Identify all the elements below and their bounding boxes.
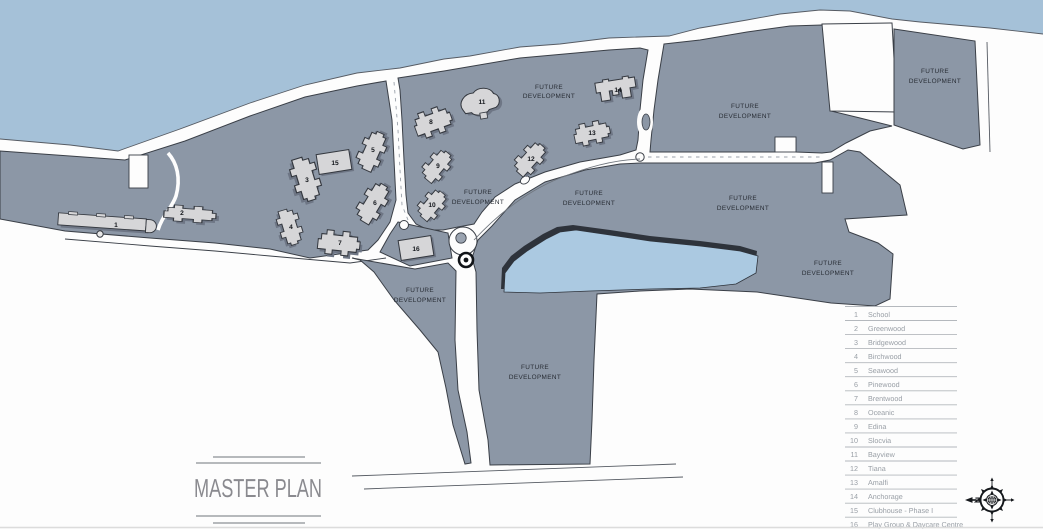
svg-text:FUTURE: FUTURE	[575, 190, 603, 197]
svg-text:9: 9	[854, 422, 858, 431]
svg-text:Clubhouse - Phase I: Clubhouse - Phase I	[868, 506, 933, 515]
svg-text:15: 15	[331, 160, 339, 167]
svg-text:DEVELOPMENT: DEVELOPMENT	[909, 78, 961, 85]
svg-text:FUTURE: FUTURE	[464, 189, 492, 196]
svg-text:1: 1	[854, 310, 858, 319]
svg-text:School: School	[868, 310, 890, 319]
svg-text:10: 10	[428, 202, 436, 209]
svg-text:Anchorage: Anchorage	[868, 492, 903, 501]
svg-text:Slocvia: Slocvia	[868, 436, 891, 445]
svg-text:Brentwood: Brentwood	[868, 394, 902, 403]
svg-text:6: 6	[373, 200, 377, 207]
svg-text:DEVELOPMENT: DEVELOPMENT	[563, 200, 615, 207]
svg-text:7: 7	[338, 240, 342, 247]
svg-text:7: 7	[854, 394, 858, 403]
svg-text:11: 11	[479, 99, 486, 106]
svg-text:11: 11	[851, 450, 858, 459]
svg-text:DEVELOPMENT: DEVELOPMENT	[452, 199, 504, 206]
svg-text:Pinewood: Pinewood	[868, 380, 900, 389]
svg-text:10: 10	[850, 436, 858, 445]
svg-text:1: 1	[114, 222, 118, 229]
svg-text:12: 12	[850, 464, 858, 473]
svg-text:4: 4	[289, 224, 293, 231]
svg-text:DEVELOPMENT: DEVELOPMENT	[523, 93, 575, 100]
svg-text:FUTURE: FUTURE	[406, 287, 434, 294]
svg-text:Edina: Edina	[868, 422, 886, 431]
svg-text:6: 6	[854, 380, 858, 389]
svg-text:15: 15	[850, 506, 858, 515]
svg-text:Birchwood: Birchwood	[868, 352, 902, 361]
svg-text:14: 14	[614, 87, 622, 94]
svg-text:14: 14	[850, 492, 858, 501]
svg-text:DEVELOPMENT: DEVELOPMENT	[394, 297, 446, 304]
svg-text:9: 9	[436, 163, 440, 170]
svg-text:DEVELOPMENT: DEVELOPMENT	[509, 374, 561, 381]
svg-text:13: 13	[588, 130, 596, 137]
svg-text:Oceanic: Oceanic	[868, 408, 895, 417]
svg-text:4: 4	[854, 352, 858, 361]
svg-text:8: 8	[429, 119, 433, 126]
svg-text:FUTURE: FUTURE	[814, 260, 842, 267]
svg-text:FUTURE: FUTURE	[521, 364, 549, 371]
svg-text:DEVELOPMENT: DEVELOPMENT	[719, 113, 771, 120]
svg-text:2: 2	[854, 324, 858, 333]
svg-text:Bridgewood: Bridgewood	[868, 338, 906, 347]
svg-text:Amalfi: Amalfi	[868, 478, 888, 487]
svg-text:Bayview: Bayview	[868, 450, 896, 459]
svg-text:MASTER PLAN: MASTER PLAN	[194, 473, 322, 503]
svg-text:FUTURE: FUTURE	[535, 84, 563, 91]
svg-text:FUTURE: FUTURE	[731, 103, 759, 110]
svg-text:8: 8	[854, 408, 858, 417]
svg-text:DEVELOPMENT: DEVELOPMENT	[802, 270, 854, 277]
svg-text:16: 16	[412, 246, 420, 253]
svg-text:Greenwood: Greenwood	[868, 324, 905, 333]
svg-text:DEVELOPMENT: DEVELOPMENT	[717, 205, 769, 212]
svg-text:FUTURE: FUTURE	[729, 195, 757, 202]
svg-text:5: 5	[371, 147, 375, 154]
svg-text:2: 2	[180, 210, 184, 217]
svg-text:Tiana: Tiana	[868, 464, 886, 473]
svg-text:3: 3	[305, 177, 309, 184]
svg-text:5: 5	[854, 366, 858, 375]
svg-text:FUTURE: FUTURE	[921, 68, 949, 75]
svg-text:13: 13	[850, 478, 858, 487]
svg-text:Seawood: Seawood	[868, 366, 898, 375]
svg-text:3: 3	[854, 338, 858, 347]
svg-text:12: 12	[527, 156, 535, 163]
